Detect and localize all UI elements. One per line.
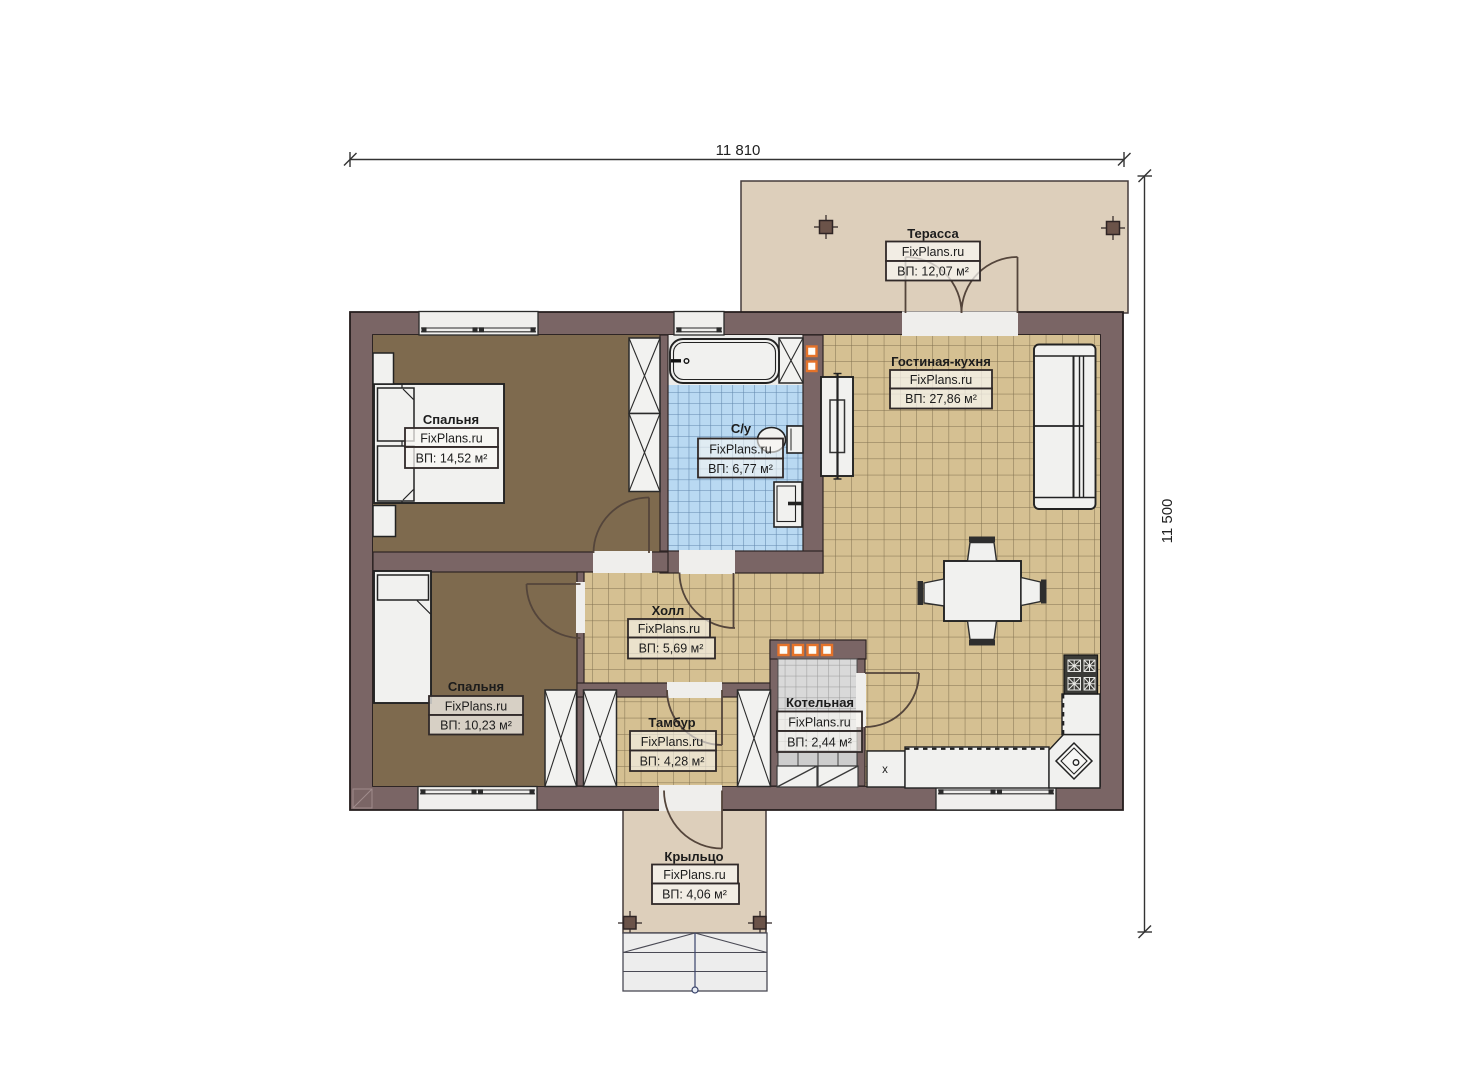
svg-text:FixPlans.ru: FixPlans.ru xyxy=(641,735,704,749)
svg-text:ВП: 12,07 м²: ВП: 12,07 м² xyxy=(897,265,969,279)
svg-text:Гостиная-кухня: Гостиная-кухня xyxy=(891,354,991,369)
svg-text:FixPlans.ru: FixPlans.ru xyxy=(902,245,965,259)
svg-text:Котельная: Котельная xyxy=(786,695,854,710)
svg-text:ВП: 2,44 м²: ВП: 2,44 м² xyxy=(787,736,852,750)
svg-text:С/у: С/у xyxy=(731,421,752,436)
svg-text:ВП: 10,23 м²: ВП: 10,23 м² xyxy=(440,719,512,733)
svg-text:11 500: 11 500 xyxy=(1159,499,1176,544)
svg-text:FixPlans.ru: FixPlans.ru xyxy=(663,868,726,882)
svg-text:Спальня: Спальня xyxy=(423,412,479,427)
svg-text:ВП: 5,69 м²: ВП: 5,69 м² xyxy=(639,642,704,656)
svg-text:Спальня: Спальня xyxy=(448,679,504,694)
svg-text:FixPlans.ru: FixPlans.ru xyxy=(638,622,701,636)
svg-text:FixPlans.ru: FixPlans.ru xyxy=(445,700,508,714)
svg-text:FixPlans.ru: FixPlans.ru xyxy=(910,373,973,387)
svg-text:FixPlans.ru: FixPlans.ru xyxy=(420,432,483,446)
svg-text:ВП: 14,52 м²: ВП: 14,52 м² xyxy=(416,452,488,466)
svg-text:ВП: 27,86 м²: ВП: 27,86 м² xyxy=(905,392,977,406)
svg-text:FixPlans.ru: FixPlans.ru xyxy=(788,716,851,730)
svg-text:x: x xyxy=(882,764,888,776)
svg-text:Терасса: Терасса xyxy=(907,226,959,241)
svg-text:ВП: 6,77 м²: ВП: 6,77 м² xyxy=(708,462,773,476)
svg-text:Холл: Холл xyxy=(652,603,685,618)
svg-text:Крыльцо: Крыльцо xyxy=(664,849,723,864)
svg-text:ВП: 4,06 м²: ВП: 4,06 м² xyxy=(662,888,727,902)
svg-text:11 810: 11 810 xyxy=(716,142,761,159)
svg-text:Тамбур: Тамбур xyxy=(648,715,695,730)
svg-text:ВП: 4,28 м²: ВП: 4,28 м² xyxy=(640,755,705,769)
svg-text:FixPlans.ru: FixPlans.ru xyxy=(709,443,772,457)
